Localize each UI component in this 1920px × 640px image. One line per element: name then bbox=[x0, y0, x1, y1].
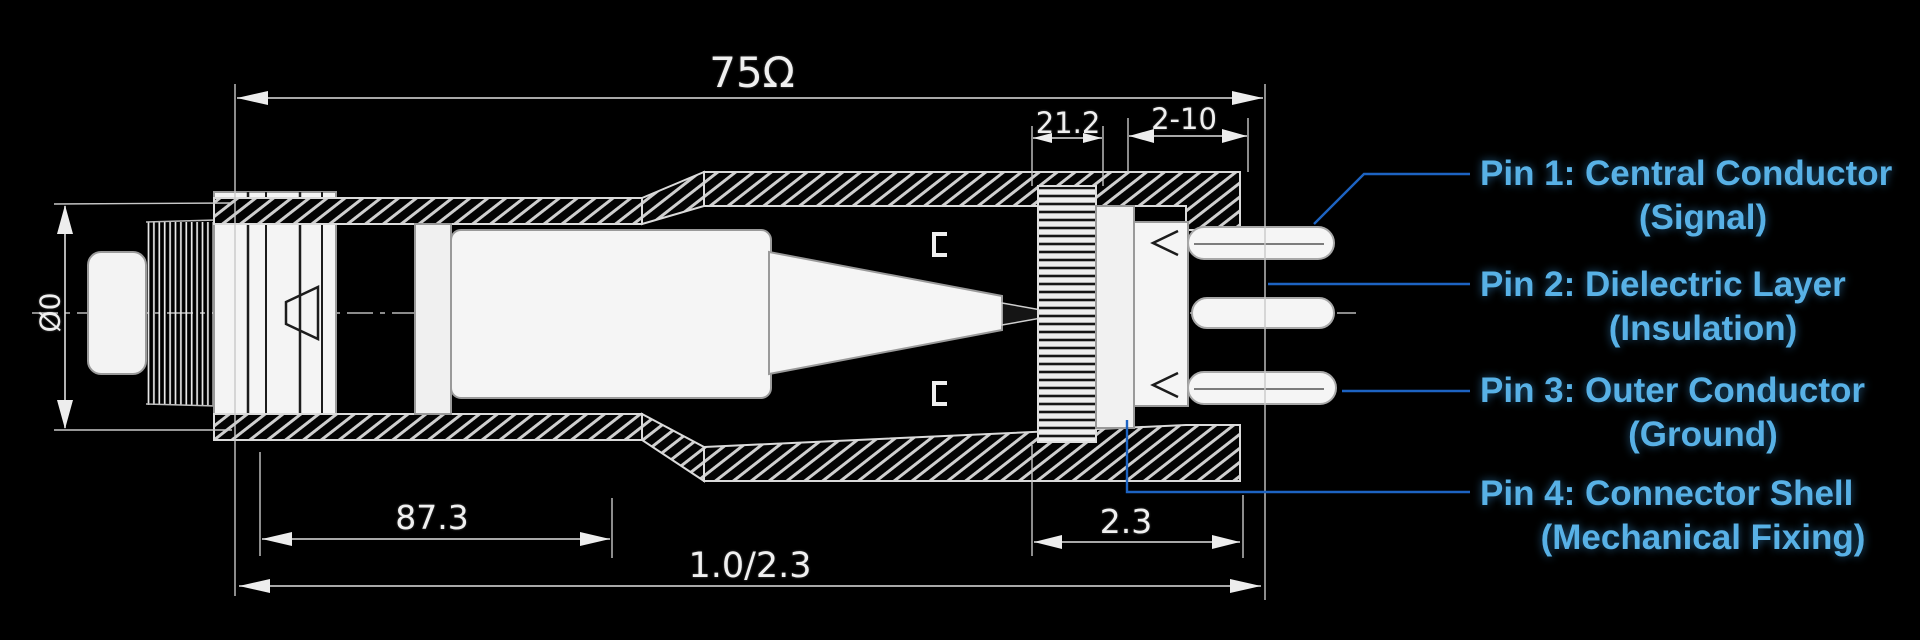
pin-2-title: Pin 2: Dielectric Layer bbox=[1480, 265, 1846, 304]
collar-section bbox=[214, 192, 336, 435]
pin-2-subtitle: (Insulation) bbox=[1480, 307, 1920, 351]
dimension-rear-length-label: 2.3 bbox=[1086, 502, 1166, 541]
dimension-overall-length-label: 1.0/2.3 bbox=[670, 546, 830, 586]
pin-3-title: Pin 3: Outer Conductor bbox=[1480, 371, 1865, 410]
dimension-body-length-label: 87.3 bbox=[382, 498, 482, 537]
threaded-stub bbox=[88, 220, 216, 406]
pin-1-leader bbox=[1314, 174, 1470, 224]
pin-1-subtitle: (Signal) bbox=[1480, 196, 1920, 240]
knurled-ring bbox=[1038, 186, 1096, 442]
technical-drawing-canvas: 75Ω 21.2 2-10 Ø0 87.3 2.3 1.0/2.3 Pin 1:… bbox=[0, 0, 1920, 640]
dimension-thread-diameter-label: Ø0 bbox=[34, 281, 67, 345]
pin-3-subtitle: (Ground) bbox=[1480, 413, 1920, 457]
dimension-knurl-width-label: 21.2 bbox=[1028, 106, 1108, 140]
inner-dielectric-sleeve bbox=[415, 224, 771, 414]
center-conductor-cone bbox=[769, 234, 1047, 404]
pin-3-shape bbox=[1188, 372, 1336, 404]
pin-4-subtitle: (Mechanical Fixing) bbox=[1480, 516, 1920, 560]
pin-4-callout: Pin 4: Connector Shell (Mechanical Fixin… bbox=[1480, 472, 1920, 560]
pin-1-title: Pin 1: Central Conductor bbox=[1480, 154, 1892, 193]
pin-1-shape bbox=[1188, 227, 1334, 259]
dimension-impedance-label: 75Ω bbox=[692, 48, 812, 97]
pin-1-callout: Pin 1: Central Conductor (Signal) bbox=[1480, 152, 1920, 240]
pin-4-title: Pin 4: Connector Shell bbox=[1480, 474, 1853, 513]
pin-2-callout: Pin 2: Dielectric Layer (Insulation) bbox=[1480, 263, 1920, 351]
pin-3-callout: Pin 3: Outer Conductor (Ground) bbox=[1480, 369, 1920, 457]
pin-2-shape bbox=[1192, 298, 1334, 328]
rear-body-block bbox=[1096, 206, 1188, 428]
dimension-pin-spacing-label: 2-10 bbox=[1144, 102, 1224, 136]
